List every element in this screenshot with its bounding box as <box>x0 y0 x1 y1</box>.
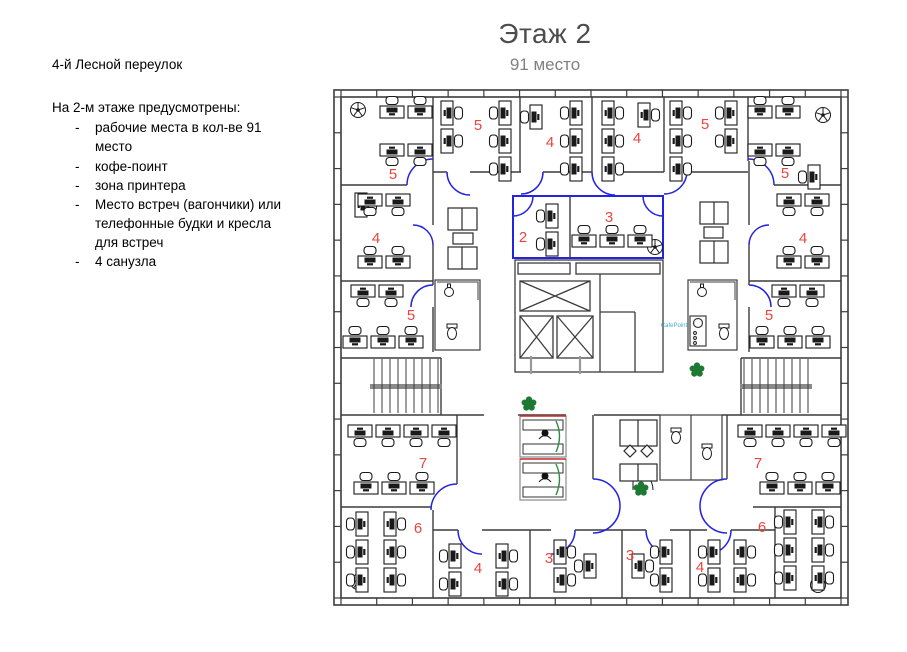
room-seat-count: 4 <box>546 134 554 151</box>
room-seat-count: 5 <box>389 166 397 183</box>
room-seat-count: 4 <box>633 130 641 147</box>
desk <box>776 97 800 119</box>
room-seat-labels: 5 4 5 5 4 4 5 5 4 5 2 3 7 6 4 3 3 4 7 6 <box>372 116 807 577</box>
desk <box>440 572 462 596</box>
desk <box>382 473 406 495</box>
floor-plan: CafePoint <box>0 0 907 652</box>
desk <box>776 144 800 166</box>
desk <box>777 247 801 269</box>
desk <box>386 247 410 269</box>
desk <box>670 129 692 153</box>
desk <box>716 101 738 125</box>
desk <box>440 544 462 568</box>
desk <box>521 105 543 129</box>
desk <box>348 425 372 447</box>
desk <box>408 97 432 119</box>
toilet-icon <box>702 444 712 460</box>
desk <box>812 538 834 562</box>
desk <box>537 232 559 256</box>
desk <box>766 425 790 447</box>
cafe-point-label: CafePoint <box>661 323 688 329</box>
desk <box>600 226 624 248</box>
desk <box>561 101 583 125</box>
room-seat-count: 3 <box>626 547 634 564</box>
desk <box>343 327 367 349</box>
toilet-icon <box>671 428 681 444</box>
toilet-right-cafepoint <box>688 280 737 350</box>
desk <box>386 194 410 216</box>
desk <box>410 473 434 495</box>
desk <box>775 566 797 590</box>
desk <box>812 510 834 534</box>
lounge-table <box>448 208 477 269</box>
sink-icon <box>698 284 707 297</box>
desk <box>816 473 840 495</box>
desk <box>806 327 830 349</box>
toilet-left <box>435 280 480 350</box>
meeting-booth <box>520 416 566 457</box>
desk <box>347 568 369 592</box>
desk <box>351 285 375 307</box>
desk <box>651 568 673 592</box>
desk <box>805 194 829 216</box>
desk <box>602 101 624 125</box>
sink-icon <box>445 284 454 297</box>
desk <box>748 97 772 119</box>
desk <box>408 144 432 166</box>
desk <box>399 327 423 349</box>
desk <box>537 204 559 228</box>
room-seat-count: 3 <box>545 550 553 567</box>
desk <box>441 101 463 125</box>
desk <box>554 568 576 592</box>
room-seat-count: 6 <box>414 520 422 537</box>
desk <box>632 554 654 578</box>
meeting-booth <box>520 459 566 500</box>
fan-icon <box>816 108 831 123</box>
desk <box>371 327 395 349</box>
desk <box>384 540 406 564</box>
room-seat-count: 3 <box>605 209 613 226</box>
desk <box>432 425 456 447</box>
desk <box>384 512 406 536</box>
desk <box>404 425 428 447</box>
desk <box>354 473 378 495</box>
desk <box>347 540 369 564</box>
room-seat-count: 5 <box>781 165 789 182</box>
desk <box>384 568 406 592</box>
desk <box>490 129 512 153</box>
desk <box>628 226 652 248</box>
desk <box>772 285 796 307</box>
desk <box>380 144 404 166</box>
desk <box>760 473 784 495</box>
desk <box>778 327 802 349</box>
desk <box>775 510 797 534</box>
desk <box>554 540 576 564</box>
room-seat-count: 7 <box>419 455 427 472</box>
desk <box>716 129 738 153</box>
room-seat-count: 5 <box>765 307 773 324</box>
desk <box>561 157 583 181</box>
desk <box>602 129 624 153</box>
desk <box>638 103 660 127</box>
desk <box>734 540 756 564</box>
sofa-lounge <box>620 420 657 481</box>
room-seat-count: 4 <box>372 230 380 247</box>
desk <box>561 129 583 153</box>
desk <box>812 566 834 590</box>
room-seat-count: 4 <box>696 559 704 576</box>
room-seat-count: 7 <box>754 455 762 472</box>
desk <box>734 568 756 592</box>
desk <box>490 101 512 125</box>
desk <box>651 540 673 564</box>
desk <box>738 425 762 447</box>
slide: Этаж 2 91 место 4-й Лесной переулок На 2… <box>0 0 907 652</box>
desk <box>441 129 463 153</box>
toilet-icon <box>447 324 457 340</box>
desk <box>800 285 824 307</box>
plant-icon <box>522 396 537 410</box>
desk <box>775 538 797 562</box>
desk <box>794 425 818 447</box>
desk <box>822 425 846 447</box>
desk <box>670 157 692 181</box>
plant-icon <box>634 481 649 495</box>
desk <box>572 226 596 248</box>
desk <box>490 157 512 181</box>
desk <box>748 144 772 166</box>
desk <box>496 572 518 596</box>
room-seat-count: 4 <box>474 560 482 577</box>
desk <box>670 101 692 125</box>
plant-icon <box>690 362 705 376</box>
desk <box>376 425 400 447</box>
desk <box>379 285 403 307</box>
room-seat-count: 6 <box>758 519 766 536</box>
desk <box>602 157 624 181</box>
desk <box>347 512 369 536</box>
room-seat-count: 5 <box>407 307 415 324</box>
desk <box>575 554 597 578</box>
room-seat-count: 5 <box>474 117 482 134</box>
desk <box>805 247 829 269</box>
desk <box>777 194 801 216</box>
desk <box>380 97 404 119</box>
toilet-icon <box>719 324 729 340</box>
room-seat-count: 5 <box>701 116 709 133</box>
lounge-table <box>700 202 728 263</box>
desk <box>358 247 382 269</box>
fan-icon <box>351 103 366 118</box>
elevator-core <box>515 260 663 374</box>
room-seat-count: 4 <box>799 230 807 247</box>
desk <box>496 544 518 568</box>
desk <box>788 473 812 495</box>
generated-furniture <box>334 90 848 605</box>
desk <box>750 327 774 349</box>
room-seat-count: 2 <box>519 229 527 246</box>
